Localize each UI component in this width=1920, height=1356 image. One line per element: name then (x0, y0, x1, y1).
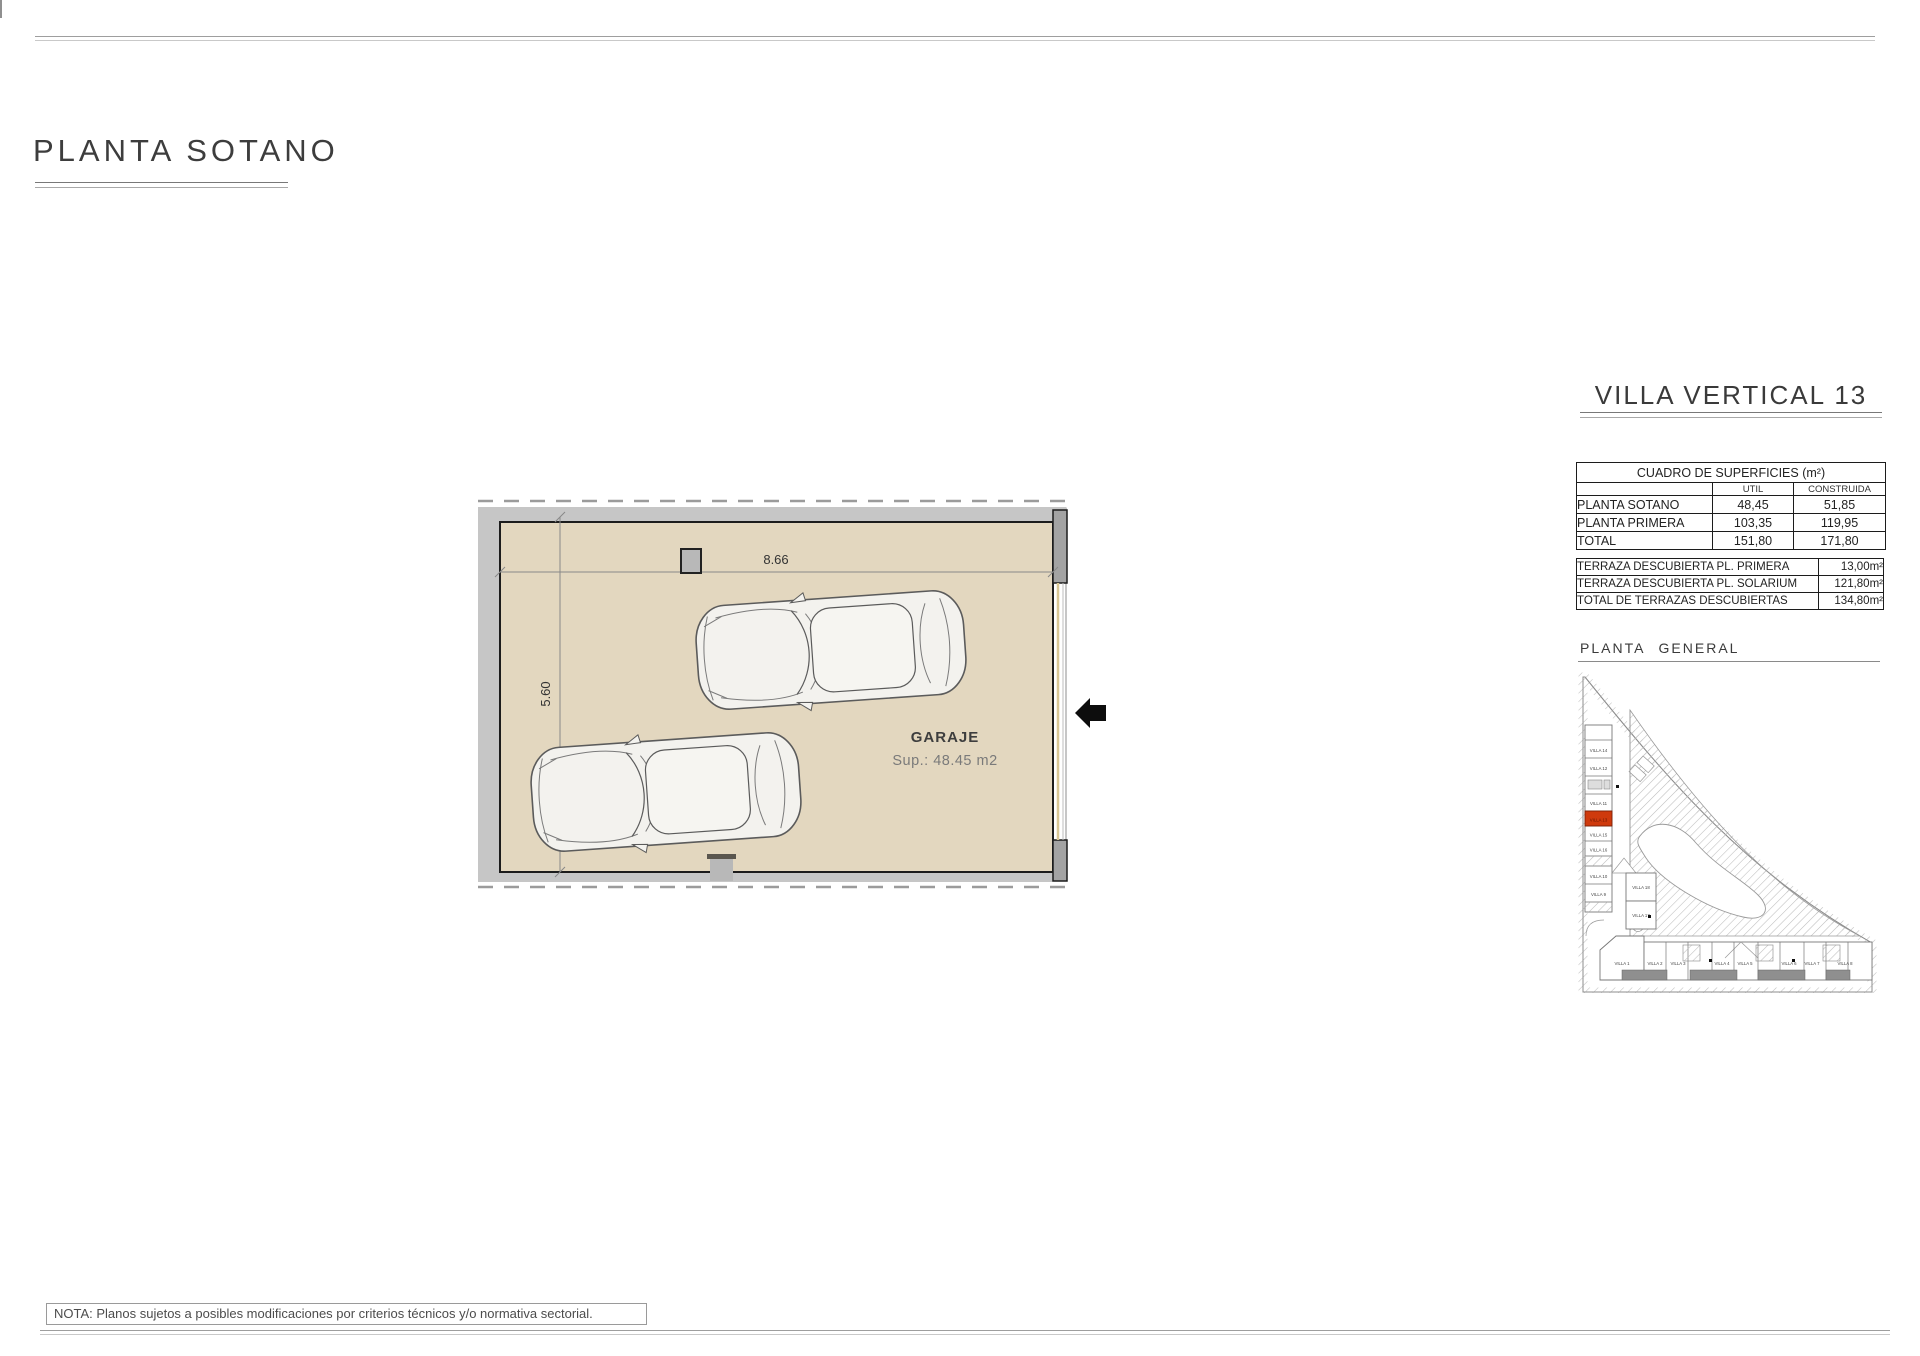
villa-label: VILLA 3 (1670, 961, 1686, 966)
surfaces-col-blank (1577, 483, 1713, 496)
villa-label: VILLA 9 (1591, 892, 1607, 897)
page-title-underline (35, 182, 288, 188)
table-row: TERRAZA DESCUBIERTA PL. SOLARIUM 121,80m… (1577, 576, 1884, 593)
villa-label: VILLA 5 (1737, 961, 1753, 966)
page-edge-mark (0, 0, 2, 18)
note-box: NOTA: Planos sujetos a posibles modifica… (46, 1303, 647, 1325)
villa-label: VILLA 15 (1590, 833, 1608, 838)
site-plan-title: PLANTA GENERAL (1580, 640, 1739, 656)
site-plan-title-underline (1578, 661, 1880, 662)
villa-label: VILLA 7 (1804, 961, 1820, 966)
villa-label: VILLA 18 (1632, 885, 1650, 890)
bottom-villa-row: VILLA 1 VILLA 2 VILLA 3 VILLA 4 VILLA 5 … (1600, 936, 1872, 980)
dim-width-label: 8.66 (763, 552, 788, 567)
villa-label: VILLA 11 (1590, 801, 1608, 806)
villa-label: VILLA 17 (1632, 913, 1650, 918)
table-row: TOTAL DE TERRAZAS DESCUBIERTAS 134,80m² (1577, 593, 1884, 610)
villa-label: VILLA 4 (1714, 961, 1730, 966)
villa-label: VILLA 12 (1590, 766, 1608, 771)
left-villa-column: VILLA 14 VILLA 12 VILLA 11 VILLA 13 VILL… (1585, 725, 1612, 936)
villa-label: VILLA 10 (1590, 874, 1608, 879)
page-top-rule (35, 36, 1875, 41)
villa-label: VILLA 14 (1590, 748, 1608, 753)
bottom-door-stub (707, 854, 736, 881)
table-row: PLANTA PRIMERA 103,35 119,95 (1577, 514, 1886, 532)
surfaces-table-title: CUADRO DE SUPERFICIES (m²) (1577, 463, 1886, 483)
site-plan: VILLA 14 VILLA 12 VILLA 11 VILLA 13 VILL… (1578, 668, 1878, 993)
surfaces-col-construida: CONSTRUIDA (1794, 483, 1886, 496)
door-pillar-top (1053, 510, 1067, 583)
room-area-label: Sup.: 48.45 m2 (892, 753, 997, 769)
surfaces-table: CUADRO DE SUPERFICIES (m²) UTIL CONSTRUI… (1576, 462, 1886, 550)
villa-label: VILLA 16 (1590, 848, 1608, 853)
villa-label: VILLA 8 (1837, 961, 1853, 966)
villa-title-underline (1580, 412, 1882, 418)
surfaces-col-util: UTIL (1713, 483, 1794, 496)
page-title: PLANTA SOTANO (33, 133, 339, 169)
structural-column (681, 549, 701, 573)
garage-floor-plan: 8.66 5.60 GARAJE Sup.: 48.45 m2 (478, 494, 1108, 894)
villa-title: VILLA VERTICAL 13 (1580, 380, 1882, 411)
terraces-table: TERRAZA DESCUBIERTA PL. PRIMERA 13,00m² … (1576, 558, 1884, 610)
table-row: TOTAL 151,80 171,80 (1577, 532, 1886, 550)
table-row: TERRAZA DESCUBIERTA PL. PRIMERA 13,00m² (1577, 559, 1884, 576)
villa-label: VILLA 2 (1647, 961, 1663, 966)
villa-label-highlighted: VILLA 13 (1590, 818, 1608, 823)
dim-height-label: 5.60 (538, 681, 553, 706)
table-row: PLANTA SOTANO 48,45 51,85 (1577, 496, 1886, 514)
plan-sheet: { "page": { "title": "PLANTA SOTANO", "n… (0, 0, 1920, 1356)
page-bottom-rule (40, 1330, 1890, 1335)
door-pillar-bottom (1053, 840, 1067, 881)
entrance-arrow-icon (1075, 698, 1106, 728)
room-label: GARAJE (911, 729, 980, 746)
villa-label: VILLA 1 (1614, 961, 1630, 966)
